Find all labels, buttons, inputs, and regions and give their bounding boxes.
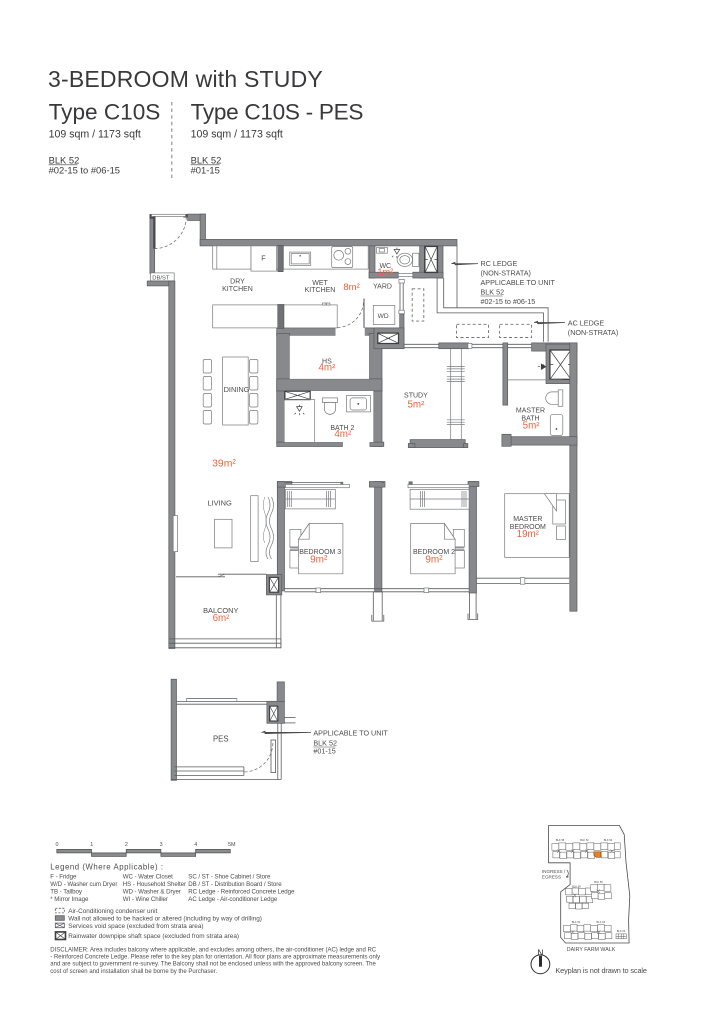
- svg-text:YARD: YARD: [373, 283, 392, 290]
- svg-text:Keyplan is not drawn to scale: Keyplan is not drawn to scale: [555, 966, 646, 975]
- svg-text:PES: PES: [213, 734, 229, 743]
- svg-text:BLK 52: BLK 52: [580, 838, 589, 842]
- svg-text:109 sqm / 1173 sqft: 109 sqm / 1173 sqft: [49, 129, 141, 141]
- svg-text:DAIRY FARM WALK: DAIRY FARM WALK: [567, 947, 616, 953]
- svg-text:F - Fridge: F - Fridge: [50, 873, 77, 880]
- svg-text:#02-15 to #06-15: #02-15 to #06-15: [481, 297, 536, 306]
- svg-text:BLK 58: BLK 58: [572, 884, 581, 888]
- svg-text:5m²: 5m²: [407, 399, 425, 410]
- svg-text:(NON-STRATA): (NON-STRATA): [481, 269, 531, 278]
- svg-text:EGRESS: EGRESS: [542, 875, 561, 880]
- svg-text:3-BEDROOM with STUDY: 3-BEDROOM with STUDY: [48, 66, 323, 92]
- svg-text:MASTER: MASTER: [516, 408, 545, 415]
- svg-text:SC / ST - Shoe Cabinet / Store: SC / ST - Shoe Cabinet / Store: [188, 873, 271, 880]
- svg-text:109 sqm / 1173 sqft: 109 sqm / 1173 sqft: [191, 129, 283, 141]
- svg-text:2: 2: [125, 842, 128, 848]
- svg-text:INGRESS /: INGRESS /: [542, 869, 566, 874]
- svg-text:39m²: 39m²: [212, 459, 236, 470]
- svg-text:#01-15: #01-15: [313, 747, 335, 756]
- svg-text:W/D - Washer cum Dryer: W/D - Washer cum Dryer: [50, 881, 117, 888]
- svg-text:0: 0: [56, 842, 59, 848]
- svg-text:4m²: 4m²: [334, 429, 352, 440]
- svg-text:Wall not allowed to be hacked: Wall not allowed to be hacked or altered…: [68, 916, 262, 923]
- svg-text:BLK 60: BLK 60: [572, 920, 581, 924]
- svg-text:WET: WET: [312, 280, 328, 287]
- svg-text:BLK 52: BLK 52: [481, 288, 505, 297]
- svg-text:DINING: DINING: [224, 385, 250, 394]
- svg-text:- Reinforced Concrete Ledge. P: - Reinforced Concrete Ledge. Please refe…: [50, 955, 380, 961]
- svg-text:BLK 58: BLK 58: [556, 838, 565, 842]
- svg-text:APPLICABLE TO UNIT: APPLICABLE TO UNIT: [313, 728, 388, 737]
- svg-text:Services void space (excluded: Services void space (excluded from strat…: [68, 923, 203, 930]
- svg-text:4m²: 4m²: [318, 362, 336, 373]
- svg-text:Air-Conditioning condenser uni: Air-Conditioning condenser unit: [68, 908, 157, 915]
- svg-text:BLK 64: BLK 64: [617, 929, 626, 933]
- svg-text:#02-15 to #06-15: #02-15 to #06-15: [49, 164, 120, 175]
- svg-text:* Mirror Image: * Mirror Image: [50, 896, 89, 903]
- svg-text:TB - Tallboy: TB - Tallboy: [50, 888, 83, 895]
- svg-text:and are subject to government: and are subject to government re-survey.…: [50, 962, 376, 968]
- svg-text:1m²: 1m²: [377, 267, 393, 277]
- svg-text:KITCHEN: KITCHEN: [222, 286, 253, 293]
- svg-text:3: 3: [160, 842, 163, 848]
- svg-text:APPLICABLE TO UNIT: APPLICABLE TO UNIT: [481, 278, 556, 287]
- svg-text:Legend (Where Applicable) :: Legend (Where Applicable) :: [50, 862, 163, 871]
- svg-text:AC Ledge - Air-conditioner Led: AC Ledge - Air-conditioner Ledge: [188, 896, 278, 903]
- svg-text:Type C10S: Type C10S: [49, 100, 161, 125]
- svg-text:MASTER: MASTER: [513, 516, 542, 523]
- svg-text:WD: WD: [378, 313, 389, 320]
- svg-text:RC LEDGE: RC LEDGE: [481, 259, 518, 268]
- svg-text:(NON-STRATA): (NON-STRATA): [568, 328, 618, 337]
- svg-text:#01-15: #01-15: [191, 164, 220, 175]
- svg-text:6m²: 6m²: [213, 613, 231, 624]
- svg-text:AC LEDGE: AC LEDGE: [568, 318, 605, 327]
- svg-text:DISCLAIMER: Area includes balc: DISCLAIMER: Area includes balcony where …: [50, 947, 377, 953]
- svg-text:RC Ledge - Reinforced Concrete: RC Ledge - Reinforced Concrete Ledge: [188, 888, 295, 895]
- svg-text:Rainwater downpipe shaft space: Rainwater downpipe shaft space (excluded…: [68, 933, 239, 940]
- svg-text:5m²: 5m²: [523, 421, 541, 432]
- svg-text:DB / ST - Distribution Board /: DB / ST - Distribution Board / Store: [188, 881, 282, 888]
- svg-text:BLK 62: BLK 62: [597, 920, 606, 924]
- svg-text:WD - Washer & Dryer: WD - Washer & Dryer: [123, 888, 181, 895]
- svg-text:BLK 56: BLK 56: [594, 880, 603, 884]
- svg-text:8m²: 8m²: [343, 282, 360, 293]
- svg-text:HS - Household Shelter: HS - Household Shelter: [123, 881, 186, 888]
- svg-text:9m²: 9m²: [310, 555, 328, 566]
- svg-text:cost of screen and installatio: cost of screen and installation shall be…: [50, 969, 217, 975]
- svg-text:DRY: DRY: [230, 279, 245, 286]
- svg-text:KITCHEN: KITCHEN: [305, 287, 336, 294]
- svg-text:5M: 5M: [228, 842, 236, 848]
- svg-text:F: F: [261, 253, 266, 262]
- svg-text:1: 1: [90, 842, 93, 848]
- svg-text:BLK 54: BLK 54: [604, 838, 613, 842]
- svg-text:WC - Water Closet: WC - Water Closet: [123, 873, 173, 880]
- svg-text:9m²: 9m²: [425, 555, 443, 566]
- svg-text:4: 4: [194, 842, 197, 848]
- svg-text:WI - Wine Chiller: WI - Wine Chiller: [123, 896, 168, 903]
- svg-text:Type C10S - PES: Type C10S - PES: [191, 100, 364, 125]
- svg-text:19m²: 19m²: [517, 529, 540, 540]
- svg-text:LIVING: LIVING: [207, 498, 231, 507]
